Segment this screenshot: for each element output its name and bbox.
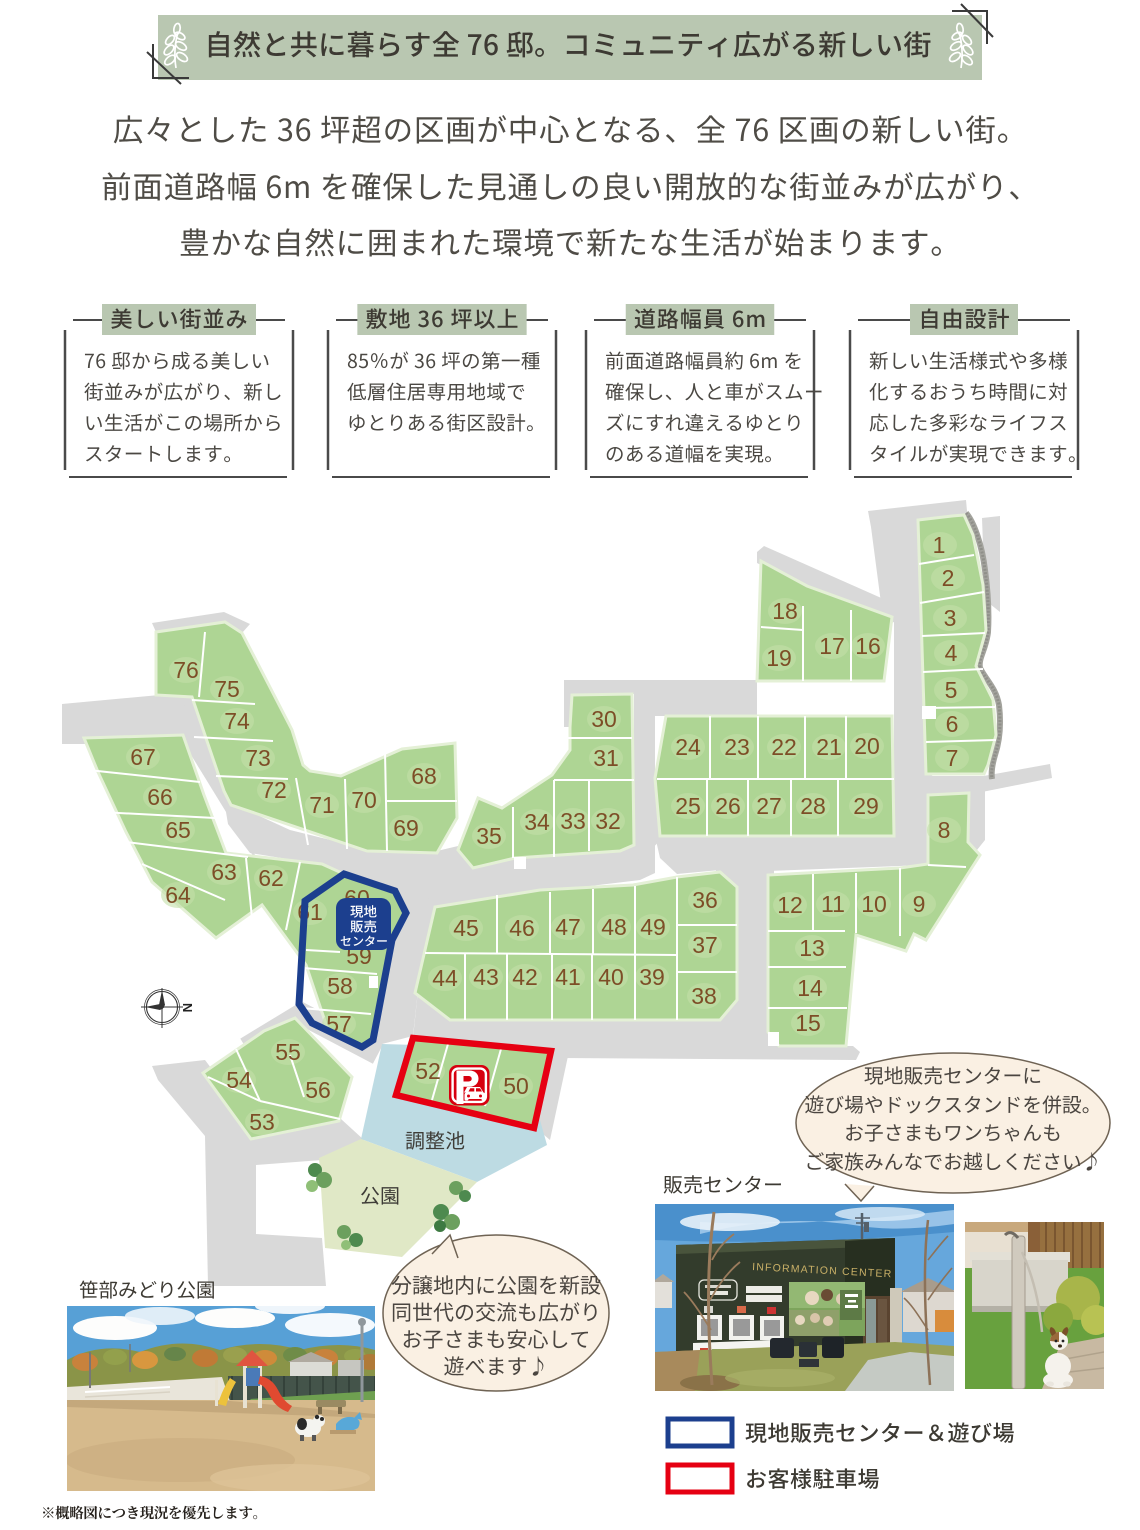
svg-text:32: 32 <box>595 808 621 834</box>
svg-text:24: 24 <box>675 734 701 760</box>
svg-text:39: 39 <box>639 964 665 990</box>
svg-text:41: 41 <box>555 964 581 990</box>
svg-text:72: 72 <box>261 777 287 803</box>
svg-text:31: 31 <box>593 745 619 771</box>
svg-text:11: 11 <box>821 891 845 917</box>
svg-text:54: 54 <box>226 1067 252 1093</box>
svg-text:37: 37 <box>692 932 718 958</box>
svg-text:14: 14 <box>797 975 823 1001</box>
svg-text:17: 17 <box>819 633 845 659</box>
svg-text:62: 62 <box>258 865 284 891</box>
svg-text:64: 64 <box>165 882 191 908</box>
svg-text:45: 45 <box>453 915 479 941</box>
svg-text:35: 35 <box>476 823 502 849</box>
svg-text:56: 56 <box>305 1077 331 1103</box>
svg-text:18: 18 <box>772 598 798 624</box>
svg-text:9: 9 <box>913 891 926 917</box>
svg-text:66: 66 <box>147 784 173 810</box>
svg-text:4: 4 <box>945 640 958 666</box>
svg-text:30: 30 <box>591 706 617 732</box>
svg-text:16: 16 <box>855 633 881 659</box>
svg-text:71: 71 <box>309 792 335 818</box>
svg-text:38: 38 <box>691 983 717 1009</box>
svg-text:75: 75 <box>214 676 240 702</box>
svg-text:27: 27 <box>756 793 782 819</box>
svg-text:49: 49 <box>640 914 666 940</box>
svg-text:46: 46 <box>509 915 535 941</box>
svg-text:67: 67 <box>130 744 156 770</box>
svg-text:73: 73 <box>245 745 271 771</box>
svg-text:15: 15 <box>795 1010 821 1036</box>
svg-text:34: 34 <box>524 809 550 835</box>
svg-text:43: 43 <box>473 964 499 990</box>
svg-text:12: 12 <box>777 892 803 918</box>
svg-text:50: 50 <box>503 1073 529 1099</box>
svg-text:58: 58 <box>327 973 353 999</box>
svg-text:N: N <box>180 1003 195 1012</box>
svg-text:74: 74 <box>224 708 250 734</box>
svg-text:36: 36 <box>692 887 718 913</box>
svg-text:29: 29 <box>853 793 879 819</box>
svg-text:53: 53 <box>249 1109 275 1135</box>
svg-text:6: 6 <box>946 711 959 737</box>
svg-text:52: 52 <box>415 1058 441 1084</box>
svg-text:68: 68 <box>411 763 437 789</box>
svg-text:48: 48 <box>601 914 627 940</box>
svg-text:76: 76 <box>173 657 199 683</box>
svg-text:70: 70 <box>351 787 377 813</box>
svg-text:1: 1 <box>933 532 946 558</box>
svg-text:19: 19 <box>766 645 792 671</box>
svg-text:2: 2 <box>942 565 955 591</box>
svg-text:21: 21 <box>816 734 842 760</box>
svg-text:28: 28 <box>800 793 826 819</box>
svg-text:20: 20 <box>854 733 880 759</box>
svg-text:7: 7 <box>946 745 959 771</box>
svg-text:42: 42 <box>512 964 538 990</box>
svg-text:47: 47 <box>555 914 581 940</box>
svg-text:13: 13 <box>799 935 825 961</box>
svg-text:23: 23 <box>724 734 750 760</box>
svg-text:55: 55 <box>275 1039 301 1065</box>
svg-text:3: 3 <box>944 605 957 631</box>
svg-text:40: 40 <box>598 964 624 990</box>
svg-text:26: 26 <box>715 793 741 819</box>
svg-text:33: 33 <box>560 808 586 834</box>
svg-text:8: 8 <box>938 817 951 843</box>
svg-text:69: 69 <box>393 815 419 841</box>
svg-text:44: 44 <box>432 965 458 991</box>
svg-text:5: 5 <box>945 677 958 703</box>
svg-text:22: 22 <box>771 734 797 760</box>
svg-text:10: 10 <box>861 891 887 917</box>
svg-text:65: 65 <box>165 817 191 843</box>
svg-text:25: 25 <box>675 793 701 819</box>
svg-text:63: 63 <box>211 859 237 885</box>
